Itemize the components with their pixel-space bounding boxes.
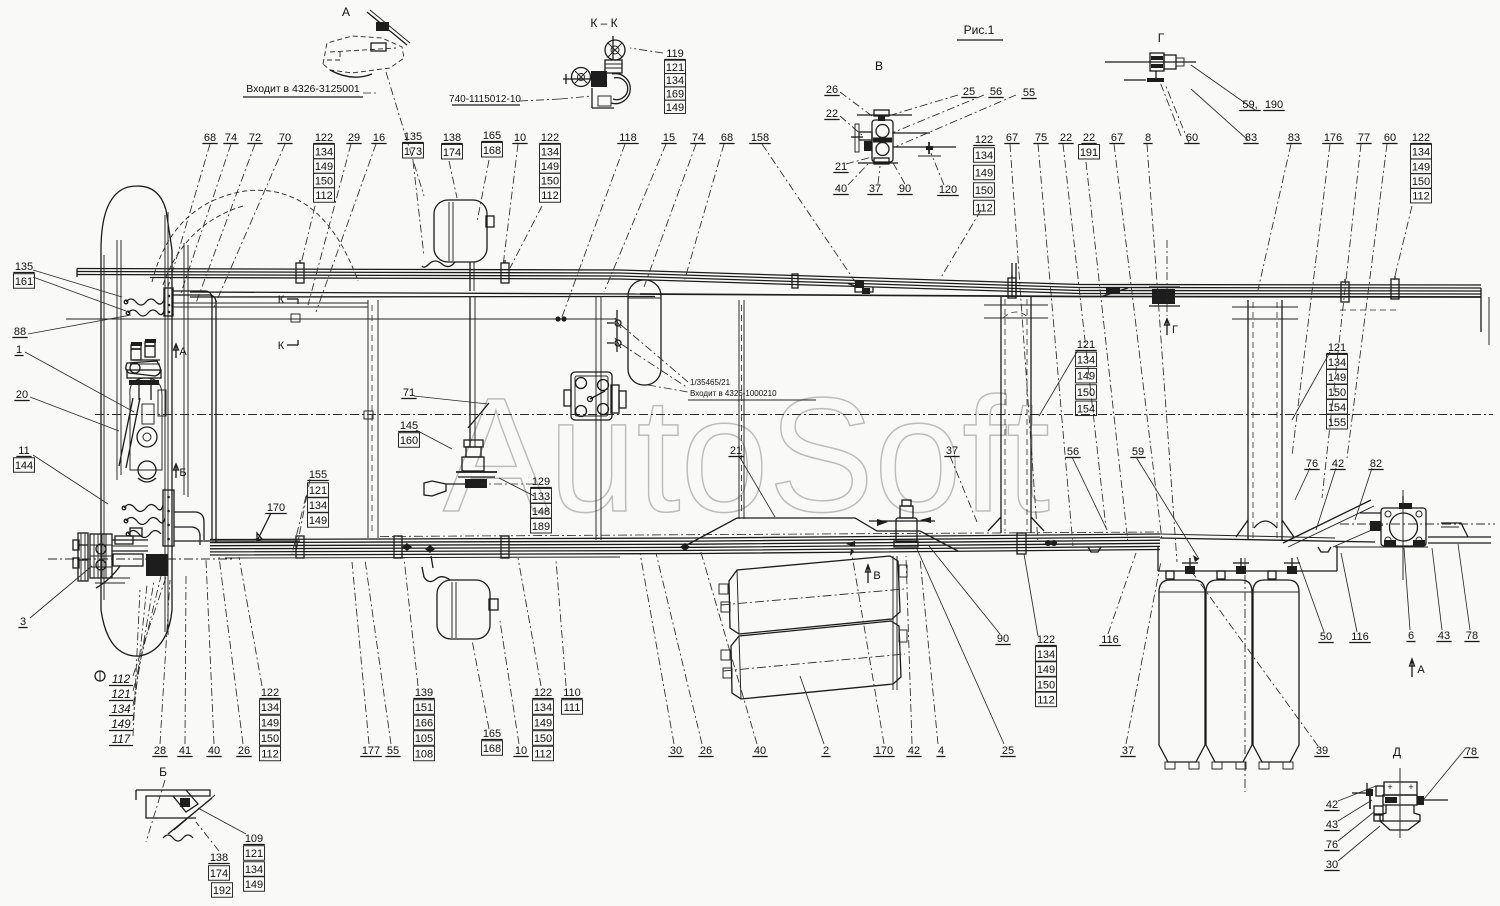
svg-text:149: 149 [309,515,327,527]
svg-text:134: 134 [245,864,263,876]
svg-text:138: 138 [443,132,461,144]
svg-text:78: 78 [1466,630,1478,642]
svg-text:60: 60 [1186,132,1198,144]
svg-text:111: 111 [564,702,581,714]
svg-text:192: 192 [213,885,231,897]
svg-text:134: 134 [309,500,327,512]
svg-text:150: 150 [975,185,993,197]
svg-text:149: 149 [534,718,552,730]
svg-text:129: 129 [532,476,550,488]
svg-text:149: 149 [245,879,263,891]
svg-text:112: 112 [975,203,993,215]
svg-text:76: 76 [1306,458,1318,470]
svg-text:122: 122 [315,132,333,144]
svg-text:39: 39 [1316,745,1328,757]
svg-text:+: + [1408,782,1413,792]
svg-text:20: 20 [16,389,28,401]
svg-text:150: 150 [261,733,279,745]
svg-text:83: 83 [1245,132,1257,144]
svg-text:149: 149 [1412,161,1430,173]
svg-text:22: 22 [826,108,838,120]
svg-text:68: 68 [721,132,733,144]
svg-text:150: 150 [1037,679,1055,691]
svg-text:26: 26 [826,84,838,96]
svg-text:176: 176 [1324,132,1342,144]
svg-text:122: 122 [975,134,993,146]
svg-text:160: 160 [400,435,418,447]
svg-text:Входит в 4326-3125001: Входит в 4326-3125001 [246,83,360,95]
svg-text:133: 133 [532,491,550,503]
svg-text:144: 144 [15,460,33,472]
svg-text:37: 37 [869,183,881,195]
svg-text:134: 134 [534,702,552,714]
svg-text:740-1115012-10: 740-1115012-10 [449,94,521,105]
svg-text:72: 72 [249,132,261,144]
svg-text:134: 134 [111,704,130,716]
svg-text:К – К: К – К [590,16,617,30]
svg-text:40: 40 [754,745,766,757]
svg-text:21: 21 [835,161,847,173]
svg-text:121: 121 [666,62,684,74]
svg-text:Б: Б [159,765,167,779]
svg-text:149: 149 [1077,371,1095,383]
svg-text:110: 110 [563,687,581,699]
svg-text:134: 134 [541,147,559,159]
svg-text:150: 150 [1412,176,1430,188]
svg-text:145: 145 [400,420,418,432]
svg-text:90: 90 [899,183,911,195]
svg-text:149: 149 [975,168,993,180]
svg-text:165: 165 [483,130,501,142]
svg-text:8: 8 [1145,132,1151,144]
svg-text:150: 150 [1077,387,1095,399]
svg-text:78: 78 [1465,746,1477,758]
svg-text:А: А [342,5,350,19]
svg-text:121: 121 [1328,342,1346,354]
svg-text:90: 90 [997,633,1009,645]
svg-text:25: 25 [1002,745,1014,757]
svg-text:161: 161 [15,276,33,288]
svg-text:42: 42 [1332,458,1344,470]
svg-text:112: 112 [112,674,131,686]
svg-text:174: 174 [210,868,228,880]
svg-text:122: 122 [1412,132,1430,144]
svg-text:40: 40 [835,183,847,195]
svg-text:74: 74 [225,132,237,144]
svg-text:135: 135 [404,131,422,143]
svg-text:37: 37 [1122,745,1134,757]
svg-text:174: 174 [443,147,461,159]
svg-text:6: 6 [1408,630,1414,642]
svg-text:+: + [1387,782,1392,792]
svg-text:29: 29 [348,132,360,144]
svg-text:16: 16 [373,132,385,144]
svg-text:112: 112 [534,749,552,761]
svg-text:112: 112 [1037,694,1055,706]
svg-text:Рис.1: Рис.1 [964,23,995,37]
svg-text:158: 158 [751,132,769,144]
svg-text:26: 26 [700,745,712,757]
svg-text:10: 10 [515,745,527,757]
svg-text:150: 150 [1328,387,1346,399]
svg-text:42: 42 [1326,799,1338,811]
svg-text:К: К [278,294,285,306]
svg-text:56: 56 [1067,446,1079,458]
svg-text:112: 112 [1412,191,1430,203]
svg-text:112: 112 [261,749,279,761]
svg-text:21: 21 [730,445,742,457]
svg-text:121: 121 [245,848,263,860]
svg-text:170: 170 [267,502,285,514]
svg-text:41: 41 [179,745,191,757]
svg-text:119: 119 [666,48,684,60]
svg-text:К: К [278,340,285,352]
svg-text:88: 88 [14,326,26,338]
svg-text:68: 68 [204,132,216,144]
svg-text:Входит в 4326-1000210: Входит в 4326-1000210 [690,389,777,398]
svg-text:4: 4 [938,745,944,757]
svg-text:А: А [1417,664,1425,676]
svg-text:25: 25 [963,86,975,98]
svg-text:138: 138 [210,852,228,864]
svg-text:166: 166 [415,718,433,730]
svg-text:149: 149 [541,161,559,173]
svg-text:71: 71 [403,387,415,399]
svg-text:30: 30 [1326,859,1338,871]
svg-text:168: 168 [483,743,501,755]
svg-text:1/35465/21: 1/35465/21 [690,378,731,387]
svg-text:149: 149 [315,161,333,173]
svg-text:149: 149 [111,719,131,731]
svg-text:37: 37 [946,445,958,457]
svg-text:Г: Г [1172,324,1178,336]
svg-text:1: 1 [16,344,22,356]
svg-text:134: 134 [1412,147,1430,159]
svg-text:11: 11 [18,445,29,457]
svg-text:165: 165 [483,728,501,740]
svg-text:122: 122 [534,687,552,699]
svg-text:55: 55 [1023,87,1035,99]
svg-text:121: 121 [309,485,327,497]
svg-text:77: 77 [1358,132,1370,144]
svg-text:112: 112 [315,190,333,202]
svg-text:В: В [875,59,883,73]
svg-text:43: 43 [1326,819,1338,831]
svg-text:60: 60 [1384,132,1396,144]
svg-text:154: 154 [1328,402,1346,414]
svg-text:134: 134 [315,147,333,159]
svg-text:28: 28 [154,745,166,757]
svg-text:122: 122 [261,687,279,699]
svg-text:112: 112 [541,190,559,202]
svg-text:134: 134 [975,150,993,162]
svg-text:109: 109 [245,833,263,845]
svg-text:118: 118 [619,132,637,144]
svg-text:116: 116 [1351,631,1369,643]
svg-text:50: 50 [1320,631,1332,643]
svg-text:43: 43 [1438,630,1450,642]
svg-text:120: 120 [939,184,957,196]
svg-text:22: 22 [1083,132,1095,144]
svg-text:83: 83 [1288,132,1300,144]
svg-text:56: 56 [990,86,1002,98]
svg-text:75: 75 [1035,132,1047,144]
svg-text:59,: 59, [1242,99,1257,111]
svg-text:10: 10 [514,132,526,144]
svg-text:67: 67 [1111,132,1123,144]
svg-text:134: 134 [1037,649,1055,661]
svg-text:150: 150 [315,176,333,188]
svg-text:В: В [873,570,880,582]
svg-text:108: 108 [415,749,433,761]
svg-text:Д: Д [1393,745,1401,759]
svg-text:Г: Г [1158,31,1165,45]
svg-text:189: 189 [532,521,550,533]
svg-text:3: 3 [20,616,26,628]
svg-text:149: 149 [1328,372,1346,384]
svg-text:191: 191 [1080,147,1098,159]
svg-text:76: 76 [1326,839,1338,851]
svg-text:А: А [179,346,187,358]
svg-text:2: 2 [823,745,829,757]
svg-text:168: 168 [483,145,501,157]
svg-text:150: 150 [541,176,559,188]
svg-text:170: 170 [875,745,893,757]
svg-text:135: 135 [15,261,33,273]
svg-text:134: 134 [1077,354,1095,366]
svg-text:190: 190 [1265,99,1283,111]
svg-text:173: 173 [404,146,422,158]
svg-text:15: 15 [663,132,675,144]
svg-text:122: 122 [1037,634,1055,646]
svg-text:74: 74 [692,132,704,144]
svg-text:155: 155 [309,469,327,481]
svg-text:149: 149 [261,718,279,730]
svg-text:42: 42 [908,745,920,757]
svg-text:105: 105 [415,733,433,745]
svg-text:121: 121 [1077,339,1095,351]
svg-text:26: 26 [238,745,250,757]
svg-text:22: 22 [1060,132,1072,144]
svg-text:139: 139 [415,687,433,699]
svg-text:59: 59 [1132,446,1144,458]
svg-text:122: 122 [541,132,559,144]
svg-text:55: 55 [387,745,399,757]
svg-text:169: 169 [666,89,684,101]
svg-text:121: 121 [111,689,130,701]
svg-text:40: 40 [208,745,220,757]
svg-text:70: 70 [279,132,291,144]
svg-text:149: 149 [666,102,684,114]
svg-text:134: 134 [666,75,684,87]
svg-text:30: 30 [670,745,682,757]
svg-text:134: 134 [261,702,279,714]
svg-text:117: 117 [112,734,131,746]
svg-text:67: 67 [1006,132,1018,144]
svg-text:116: 116 [1101,634,1119,646]
svg-text:177: 177 [362,745,380,757]
svg-text:148: 148 [532,506,550,518]
svg-text:151: 151 [415,702,433,714]
svg-text:149: 149 [1037,664,1055,676]
svg-text:150: 150 [534,733,552,745]
svg-text:Б: Б [179,467,186,479]
